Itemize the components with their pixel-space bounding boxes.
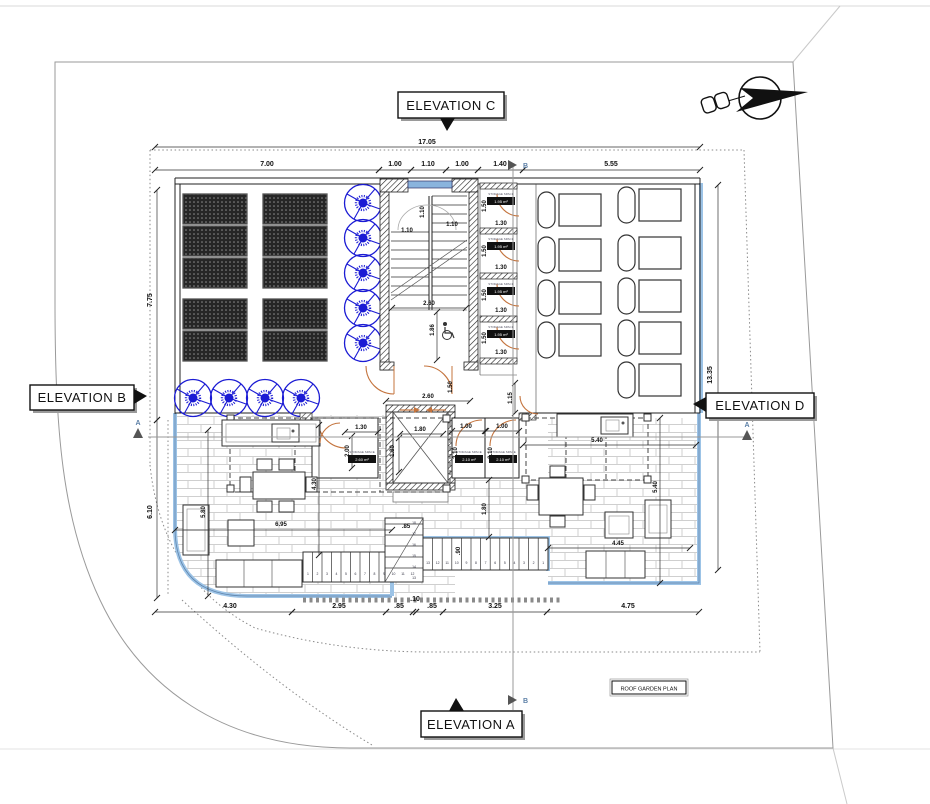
plan-title: ROOF GARDEN PLAN — [621, 687, 678, 693]
dimension-label: 1.30 — [495, 221, 507, 227]
lounge-area — [538, 187, 681, 398]
storage-area-value: 1.95 m² — [494, 332, 508, 337]
stair-treads-upper — [391, 196, 467, 310]
panel-group-4 — [263, 299, 327, 361]
stair-number: 2 — [533, 561, 535, 565]
sunbed-icon — [538, 237, 601, 273]
dimension-label: 1.10 — [421, 161, 435, 168]
stair-number: 3 — [326, 572, 328, 576]
dimension-label: 17.05 — [418, 139, 436, 146]
dimension-label: 1.80 — [482, 503, 488, 515]
dimension-label: 1.80 — [414, 427, 426, 433]
stair-number: 12 — [436, 561, 440, 565]
side-table — [228, 520, 254, 546]
storage-space-label: STORAGE SPACE — [488, 325, 513, 329]
elevation-label-a: ELEVATION A — [421, 698, 525, 740]
stair-number: 15 — [412, 554, 416, 558]
dimension-label: 1.10 — [446, 222, 458, 228]
section-marker-a-left: A — [135, 420, 140, 427]
dimension-label: 1.86 — [430, 324, 436, 336]
dimension-label: 5.80 — [201, 506, 207, 518]
sink-icon — [272, 424, 299, 442]
sunbed-icon — [538, 192, 601, 228]
tree-icon — [345, 185, 382, 222]
sunbed-icon — [618, 278, 681, 314]
stair-number: 11 — [401, 572, 405, 576]
elevation-b-arrow-icon — [134, 389, 147, 404]
dimension-label: 1.10 — [401, 228, 413, 234]
dimension-label: 13.35 — [707, 366, 714, 384]
dimension-label: 2.60 — [422, 394, 434, 400]
elevation-c-text: ELEVATION C — [406, 98, 496, 113]
dimension-label: 1.30 — [495, 308, 507, 314]
tree-icon — [345, 255, 382, 292]
north-arrow-icon — [700, 77, 808, 119]
stair-number: 10 — [392, 572, 396, 576]
storage-space-label: STORAGE SPACE — [488, 282, 513, 286]
dimension-label: 1.00 — [455, 161, 469, 168]
tree-icon — [211, 380, 248, 417]
elevation-a-arrow-icon — [449, 698, 464, 711]
storage-space-label: STORAGE SPACE — [488, 237, 513, 241]
section-marker-b-bottom: B — [523, 698, 528, 705]
vent-window — [408, 181, 452, 188]
sunbed-icon — [618, 362, 681, 398]
stair-number: 4 — [336, 572, 338, 576]
dimension-label: 1.30 — [355, 425, 367, 431]
panel-group-1 — [183, 194, 247, 288]
stair-number: 1 — [307, 572, 309, 576]
sunbed-icon — [618, 235, 681, 271]
dimension-label: 1.00 — [460, 424, 472, 430]
elevation-c-arrow-icon — [440, 118, 455, 131]
elevation-label-d: ELEVATION D — [693, 393, 817, 421]
section-marker-a-right: A — [744, 422, 749, 429]
storage-area-value: 2.10 m² — [462, 457, 476, 462]
dimension-label: 5.40 — [591, 438, 603, 444]
dimension-label: .90 — [456, 546, 462, 555]
stair-number: 2 — [317, 572, 319, 576]
stair-number: 1 — [542, 561, 544, 565]
tree-icon — [345, 325, 382, 362]
stair-number: 6 — [494, 561, 496, 565]
staircase-core — [380, 179, 478, 370]
dimension-label: 7.00 — [260, 161, 274, 168]
dimension-label: 6.10 — [147, 505, 154, 519]
dimension-label: 1.30 — [495, 265, 507, 271]
storage-area-value: 1.95 m² — [494, 244, 508, 249]
dimension-label: 1.30 — [495, 350, 507, 356]
tree-icon — [283, 380, 320, 417]
storage-area-value: 1.95 m² — [494, 289, 508, 294]
stair-number: 5 — [504, 561, 506, 565]
dimension-label: 2.60 — [423, 301, 435, 307]
dimension-label: .85 — [402, 524, 411, 530]
storage-space-label: STORAGE SPACE — [456, 450, 481, 454]
dimension-label: 1.00 — [388, 161, 402, 168]
sofa-right — [586, 551, 645, 578]
stair-number: 13 — [412, 576, 416, 580]
dimension-label: 1.40 — [493, 161, 507, 168]
solar-panels — [183, 194, 327, 361]
counter-right — [557, 414, 633, 437]
dimension-label: 1.00 — [496, 424, 508, 430]
wheelchair-icon — [443, 322, 455, 340]
sunbed-icon — [538, 280, 601, 316]
stair-number: 6 — [355, 572, 357, 576]
storage-space-label: STORAGE SPACE — [488, 192, 513, 196]
sunbed-icon — [618, 320, 681, 356]
dimension-label: 4.30 — [223, 603, 237, 610]
dimension-label: 5.40 — [653, 481, 659, 493]
stair-number: 8 — [475, 561, 477, 565]
dimension-label: 1.10 — [420, 206, 426, 218]
elevation-label-b: ELEVATION B — [30, 385, 147, 413]
dimension-label: 2.95 — [332, 603, 346, 610]
elevation-b-text: ELEVATION B — [38, 390, 127, 405]
dimension-label: 4.45 — [612, 541, 624, 547]
tree-icon — [247, 380, 284, 417]
stair-number: 16 — [412, 543, 416, 547]
dimension-label: 6.95 — [275, 522, 287, 528]
bench-left — [216, 560, 302, 587]
dimension-label: .85 — [394, 603, 404, 610]
storage-space-label: STORAGE SPACE — [490, 450, 515, 454]
tree-icon — [345, 290, 382, 327]
dimension-label: 1.50 — [448, 381, 454, 393]
stair-number: 5 — [345, 572, 347, 576]
stair-number: 9 — [465, 561, 467, 565]
storage-space-label: STORAGE SPACE — [349, 450, 374, 454]
armchair — [645, 500, 671, 538]
storage-area-value: 2.60 m² — [355, 457, 369, 462]
panel-group-2 — [263, 194, 327, 288]
sunbed-icon — [538, 322, 601, 358]
elevation-a-text: ELEVATION A — [427, 717, 515, 732]
dimension-label: .85 — [427, 603, 437, 610]
stair-number: 14 — [412, 565, 416, 569]
section-marker-b-top: B — [523, 163, 528, 170]
stair-number: 10 — [455, 561, 459, 565]
stair-number: 3 — [523, 561, 525, 565]
dimension-label: 7.75 — [147, 293, 154, 307]
stair-number: 18 — [412, 521, 416, 525]
stair-number: 7 — [364, 572, 366, 576]
plan-title-box: ROOF GARDEN PLAN — [610, 679, 688, 696]
tree-icon — [345, 220, 382, 257]
stair-number: 7 — [485, 561, 487, 565]
pouf — [605, 512, 633, 538]
stair-number: 17 — [412, 532, 416, 536]
stair-number: 13 — [426, 561, 430, 565]
core-entry-doors — [366, 366, 452, 394]
sink-icon — [601, 417, 628, 434]
dimension-label: 3.25 — [488, 603, 502, 610]
storage-area-value: 2.10 m² — [496, 457, 510, 462]
stair-number: 9 — [383, 572, 385, 576]
dimension-label: 4.30 — [312, 478, 318, 490]
dimension-label: 1.80 — [390, 445, 396, 457]
stair-number: 4 — [513, 561, 515, 565]
storage-area-value: 1.95 m² — [494, 199, 508, 204]
dimension-label: 5.55 — [604, 161, 618, 168]
panel-group-3 — [183, 299, 247, 361]
dimension-label: 4.75 — [621, 603, 635, 610]
roof-garden-plan-drawing: 17.057.001.001.101.001.405.557.756.1013.… — [0, 0, 930, 804]
elevation-label-c: ELEVATION C — [398, 92, 507, 131]
stair-number: 11 — [445, 561, 449, 565]
stair-number: 8 — [374, 572, 376, 576]
dimension-label: .10 — [410, 596, 420, 603]
sunbed-icon — [618, 187, 681, 223]
elevation-d-text: ELEVATION D — [715, 398, 805, 413]
